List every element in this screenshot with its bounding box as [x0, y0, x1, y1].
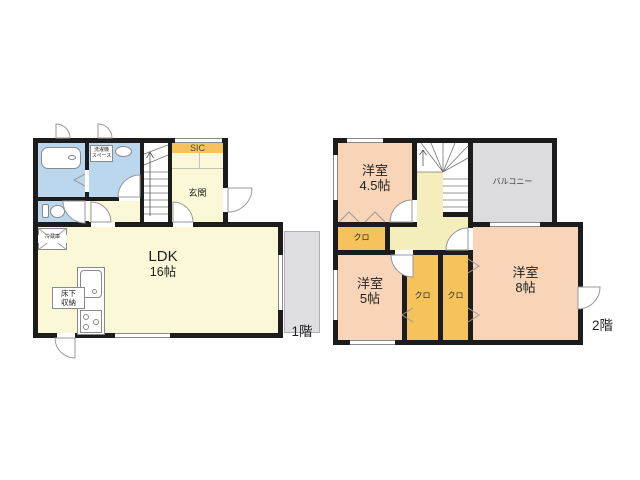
stair-treads — [443, 179, 468, 207]
laundry-door-swing — [118, 175, 140, 197]
floor2-name-label: 2階 — [592, 318, 632, 334]
bath-door-mark — [74, 174, 85, 186]
bedroom-5-name: 洋室 — [338, 277, 402, 292]
underfloor-line2: 収納 — [53, 299, 84, 308]
hall-ldk-door-swing — [91, 202, 111, 222]
stair-treads — [144, 172, 168, 214]
hall-bedroom-8-door-swing — [446, 228, 468, 250]
bedroom-8-exterior-door-swing — [578, 287, 600, 309]
closet-b-label: クロ — [407, 291, 438, 303]
laundry-space-line2: スペース — [91, 154, 112, 160]
sic-label: SIC — [172, 143, 223, 153]
ldk-name: LDK — [123, 248, 203, 265]
entrance-label: 玄関 — [172, 188, 223, 200]
floor2-plan: 洋室 4.5帖 バルコニー クロ 洋室 5帖 クロ クロ 洋室 8帖 — [333, 138, 583, 345]
closet-a-folding-door-marks — [339, 212, 385, 222]
terrace — [284, 231, 320, 333]
bedroom-4_5-name: 洋室 — [338, 164, 412, 179]
laundry-space-label: 洗濯機 スペース — [90, 145, 113, 162]
stair-direction-arrow — [420, 150, 427, 166]
closet-a-label: クロ — [338, 233, 385, 244]
balcony-label: バルコニー — [473, 177, 552, 189]
stair-winder-lines — [417, 143, 468, 172]
floorplan-canvas: SIC 洗濯機 スペース 玄関 LDK 16帖 冷蔵庫 床下 収納 1階 — [0, 0, 640, 480]
bedroom-5-door-swing — [391, 255, 413, 277]
floor1-name-label: 1階 — [284, 324, 320, 340]
bedroom-5-label: 洋室 5帖 — [338, 277, 402, 311]
bedroom-8-size: 8帖 — [473, 281, 578, 296]
closet-c-label: クロ — [443, 291, 468, 303]
toilet-door-swing — [63, 201, 85, 223]
underfloor-storage-label: 床下 収納 — [52, 287, 85, 309]
floor1-plan: SIC 洗濯機 スペース 玄関 LDK 16帖 冷蔵庫 床下 収納 — [33, 138, 283, 338]
refrigerator-label: 冷蔵庫 — [38, 235, 67, 243]
bedroom-5-size: 5帖 — [338, 292, 402, 307]
ldk-size: 16帖 — [123, 265, 203, 279]
bedroom-4_5-size: 4.5帖 — [338, 179, 412, 194]
top-window-swing-marks — [56, 124, 112, 138]
bedroom-8-name: 洋室 — [473, 266, 578, 281]
front-door-swing — [228, 188, 252, 212]
bedroom-4_5-label: 洋室 4.5帖 — [338, 164, 412, 198]
bedroom-4_5-door-swing — [390, 200, 412, 222]
entrance-ldk-door-swing — [173, 202, 193, 222]
stair-winder-lines — [144, 145, 168, 165]
back-door-swing — [55, 338, 75, 358]
bedroom-8-label: 洋室 8帖 — [473, 266, 578, 300]
ldk-label: LDK 16帖 — [123, 248, 203, 282]
